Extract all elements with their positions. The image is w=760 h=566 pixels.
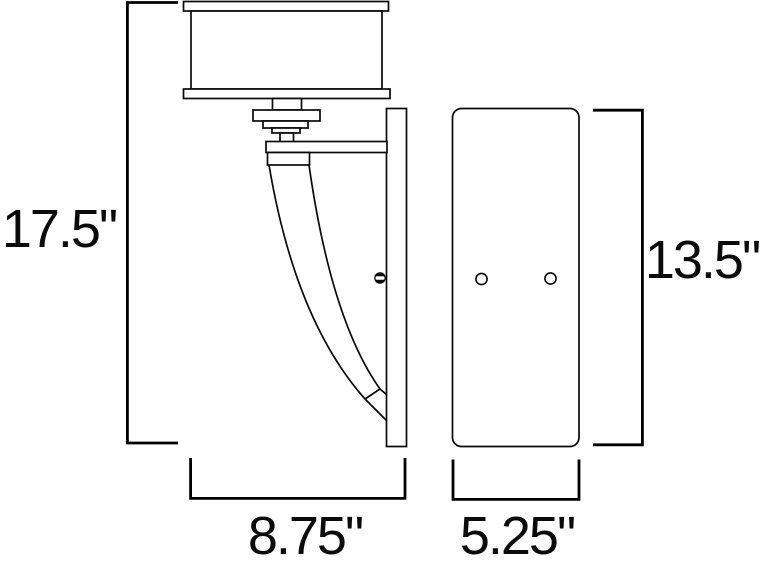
backplate-front-view bbox=[453, 109, 580, 447]
arm-socket bbox=[268, 153, 310, 166]
shade-body bbox=[191, 11, 382, 89]
backplate bbox=[453, 109, 580, 447]
shade-bottom-band bbox=[184, 89, 391, 99]
mounting-hole-left bbox=[476, 273, 487, 284]
set-screw-slot bbox=[376, 276, 385, 280]
arm-top-plate bbox=[266, 142, 387, 153]
backplate-width-dimension-label: 5.25" bbox=[460, 509, 574, 563]
wall-plate-side bbox=[387, 109, 407, 447]
fitter-riser bbox=[280, 133, 294, 142]
backplate-height-dimension-line bbox=[593, 110, 642, 445]
backplate-height-dimension-label: 13.5" bbox=[645, 233, 759, 287]
curved-arm bbox=[269, 165, 387, 421]
height-dimension-line bbox=[127, 3, 178, 444]
height-dimension-label: 17.5" bbox=[2, 202, 116, 256]
set-screw bbox=[374, 272, 386, 284]
backplate-width-dimension-line bbox=[453, 460, 579, 500]
fitter-disc-large bbox=[253, 110, 320, 121]
depth-dimension-line bbox=[191, 458, 405, 498]
fitter-disc-medium bbox=[263, 121, 308, 128]
mounting-hole-right bbox=[545, 273, 556, 284]
sconce-side-view bbox=[184, 2, 407, 447]
depth-dimension-label: 8.75" bbox=[248, 509, 362, 563]
sconce-dimension-drawing: 17.5" 8.75" 13.5" 5.25" bbox=[0, 0, 760, 566]
shade-stem bbox=[273, 99, 302, 111]
shade-top-band bbox=[184, 2, 389, 12]
